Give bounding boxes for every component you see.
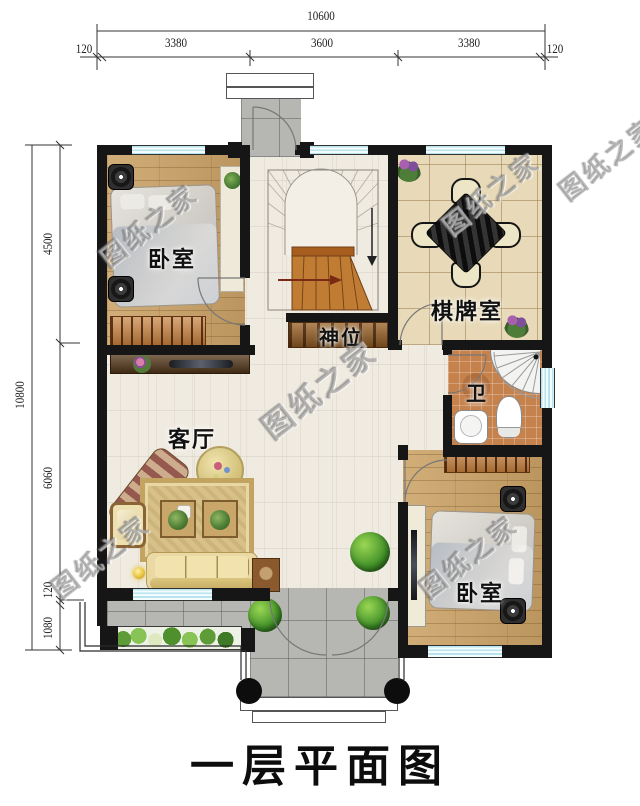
- planter-wall: [241, 628, 255, 652]
- tv-console: [110, 352, 250, 374]
- column: [384, 678, 410, 704]
- front-step: [240, 697, 398, 711]
- dim-left-seg: 4500: [40, 233, 56, 255]
- dim-top-seg: 3600: [311, 35, 333, 51]
- watermark: 图纸之家: [551, 108, 640, 209]
- flower-pot: [396, 156, 422, 182]
- wall: [97, 602, 107, 626]
- wall: [502, 645, 552, 658]
- lamp: [133, 567, 145, 579]
- dim-left-total: 10800: [12, 381, 28, 409]
- rear-step: [226, 73, 314, 87]
- room-label-chess: 棋牌室: [431, 294, 503, 326]
- dim-top-seg: 3380: [165, 35, 187, 51]
- coffee-table: [202, 500, 238, 538]
- flower-pot: [504, 312, 530, 338]
- page-title: 一层平面图: [190, 730, 450, 794]
- speaker: [108, 164, 134, 190]
- window: [428, 645, 502, 658]
- rear-step: [226, 87, 314, 99]
- wardrobe: [110, 316, 206, 346]
- wall: [97, 588, 133, 601]
- dim-left-seg: 6060: [40, 467, 56, 489]
- bush: [356, 596, 390, 630]
- wall: [97, 345, 255, 355]
- coffee-table: [160, 500, 196, 538]
- dim-left-seg: 1080: [40, 617, 56, 639]
- sofa: [146, 552, 258, 592]
- window: [310, 145, 368, 155]
- wall: [388, 340, 402, 350]
- dim-top-total: 10600: [307, 8, 335, 24]
- wall: [212, 588, 270, 601]
- wall: [443, 340, 452, 355]
- front-step: [252, 711, 386, 723]
- wall: [443, 445, 552, 457]
- sink: [454, 410, 488, 444]
- side-table: [252, 558, 280, 592]
- wall: [442, 340, 552, 350]
- wall: [240, 145, 250, 278]
- wall: [398, 502, 408, 658]
- window: [132, 145, 205, 155]
- bush: [350, 532, 390, 572]
- speaker: [108, 276, 134, 302]
- dim-top-seg: 3380: [458, 35, 480, 51]
- wall: [398, 445, 408, 460]
- flower-bed: [112, 626, 242, 650]
- room-label-bathroom: 卫: [466, 378, 488, 407]
- wall: [388, 588, 408, 601]
- window: [133, 588, 212, 601]
- column: [236, 678, 262, 704]
- room-label-bedroom-top: 卧室: [148, 242, 196, 274]
- wall: [398, 645, 428, 658]
- toilet: [496, 396, 522, 438]
- window: [540, 368, 555, 408]
- dim-top-seg: 120: [547, 41, 564, 57]
- window: [426, 145, 505, 155]
- room-label-living: 客厅: [168, 422, 216, 454]
- floor-plan-page: 卧室 棋牌室 神位 卫 客厅 卧室 10600 120 3380 3600 33…: [0, 0, 640, 806]
- bush: [248, 598, 282, 632]
- dim-top-seg: 120: [76, 41, 93, 57]
- rear-porch-floor: [241, 98, 301, 157]
- planter-wall: [100, 626, 118, 650]
